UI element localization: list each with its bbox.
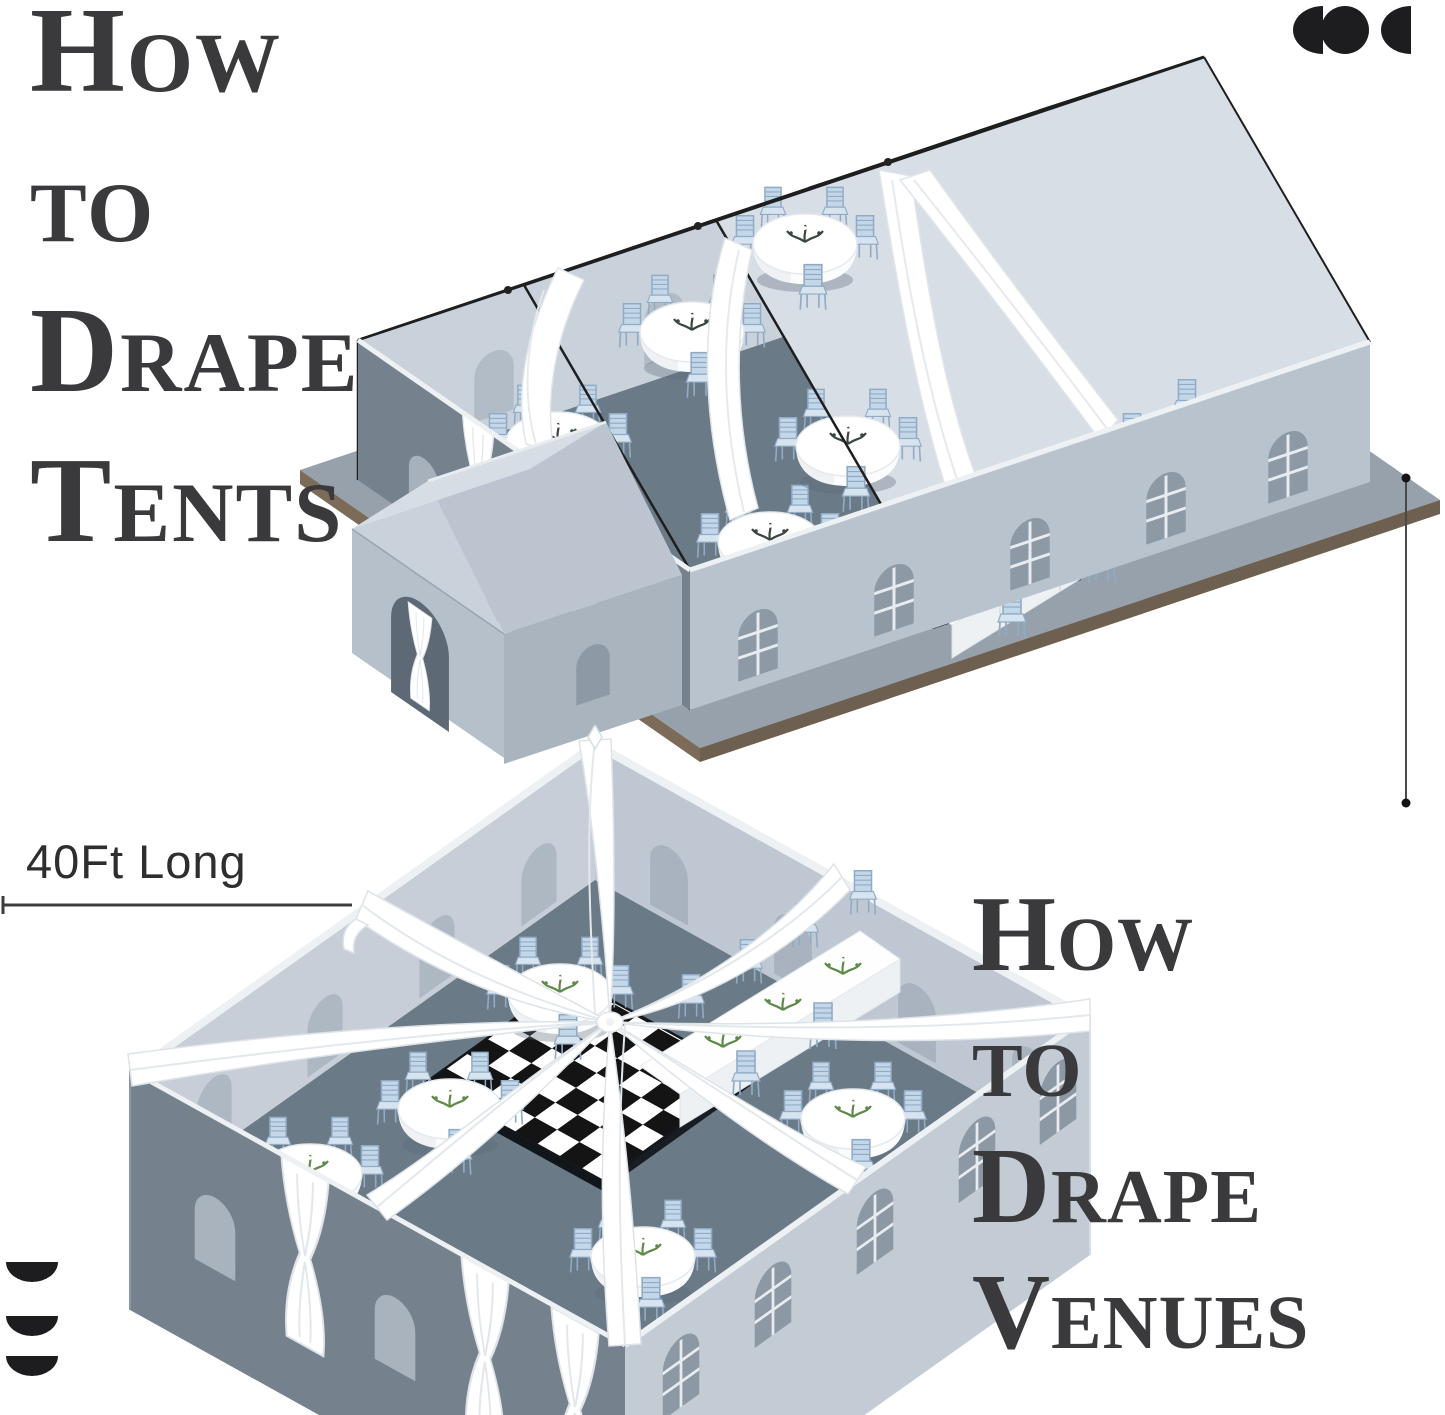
length-dimension-line bbox=[0, 890, 380, 920]
semicircle-icon bbox=[1293, 6, 1323, 54]
height-dimension-line bbox=[1392, 468, 1422, 814]
headline-line: Drape bbox=[972, 1124, 1309, 1250]
headline-line: Drape bbox=[30, 276, 360, 426]
brand-mark-top-right bbox=[1292, 4, 1417, 60]
half-disc-icon bbox=[6, 1356, 58, 1376]
semicircle-icon bbox=[1381, 6, 1411, 54]
length-dimension-label: 40Ft Long bbox=[26, 834, 247, 889]
headline-line: How bbox=[972, 872, 1309, 998]
headline-line: to bbox=[30, 126, 360, 276]
venue-illustration bbox=[95, 725, 1105, 1415]
circle-icon bbox=[1321, 6, 1369, 54]
headline-line: to bbox=[972, 998, 1309, 1124]
page: How to Drape Tents bbox=[0, 0, 1445, 1415]
headline-line: Tents bbox=[30, 426, 360, 576]
headline-line: Venues bbox=[972, 1250, 1309, 1376]
headline-tents: How to Drape Tents bbox=[30, 0, 360, 576]
tent-illustration bbox=[300, 0, 1445, 770]
brand-mark-bottom-left bbox=[6, 1260, 66, 1390]
headline-line: How bbox=[30, 0, 360, 126]
headline-venues: How to Drape Venues bbox=[972, 872, 1309, 1376]
half-disc-icon bbox=[6, 1316, 58, 1336]
half-disc-icon bbox=[6, 1262, 58, 1282]
